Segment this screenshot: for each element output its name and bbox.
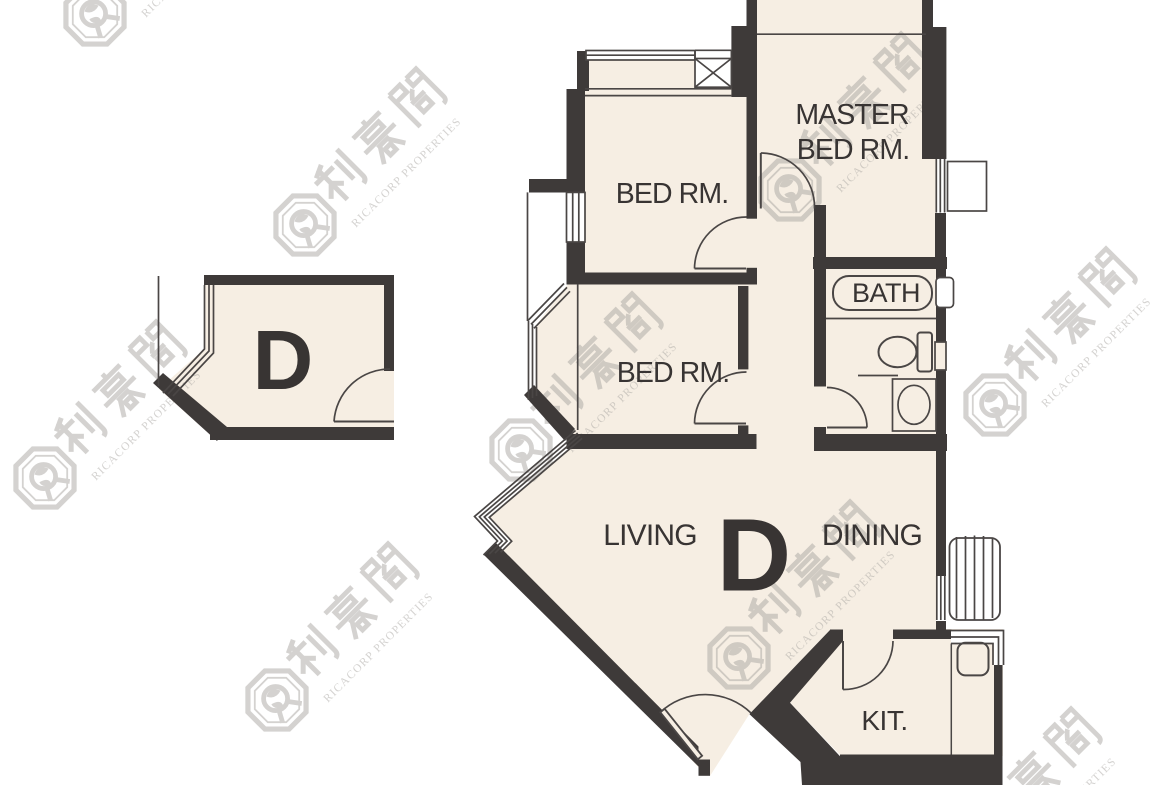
svg-text:BED RM.: BED RM. <box>797 134 909 166</box>
svg-text:MASTER: MASTER <box>795 99 909 131</box>
svg-text:BED RM.: BED RM. <box>617 357 729 389</box>
svg-text:BED RM.: BED RM. <box>616 178 728 210</box>
svg-text:KIT.: KIT. <box>861 705 907 736</box>
svg-text:LIVING: LIVING <box>603 519 697 552</box>
svg-text:D: D <box>717 498 791 613</box>
svg-text:D: D <box>253 313 314 407</box>
svg-text:DINING: DINING <box>822 519 922 552</box>
svg-text:BATH: BATH <box>852 278 920 308</box>
